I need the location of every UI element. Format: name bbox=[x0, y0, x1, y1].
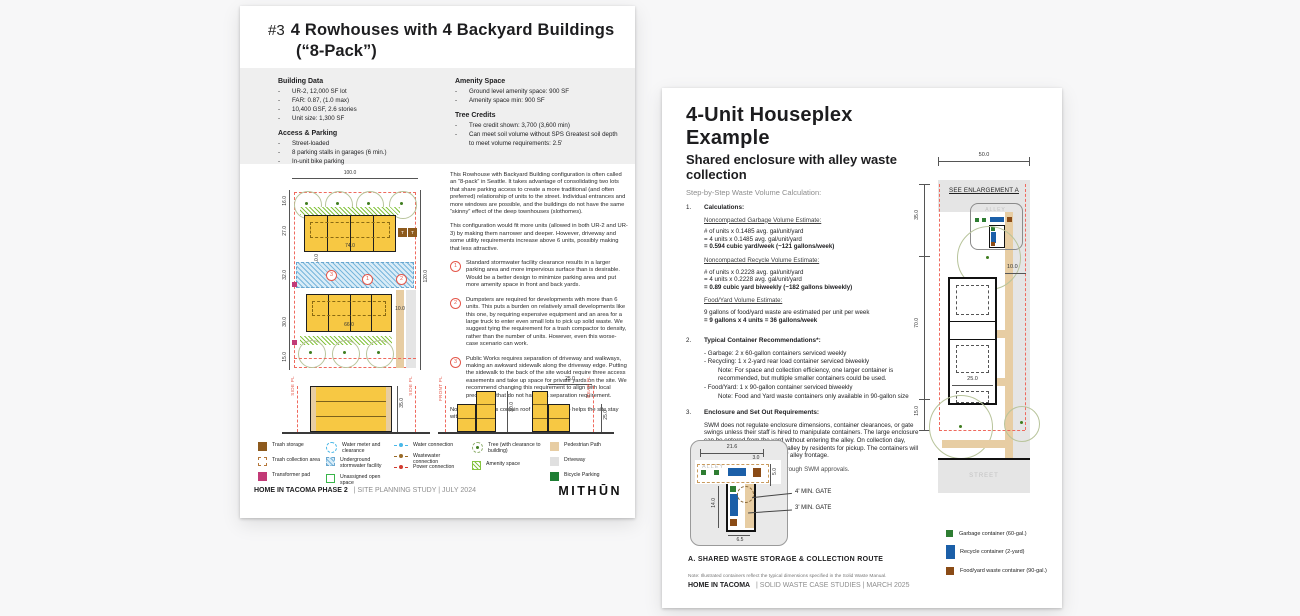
dim-gate-width: 6.5 bbox=[730, 537, 750, 543]
unit-dashed bbox=[956, 345, 989, 373]
recycle-container bbox=[728, 468, 746, 476]
container-legend: Garbage container (60-gal.) Recycle cont… bbox=[946, 530, 1058, 575]
dim-tick bbox=[700, 449, 701, 457]
dim-line bbox=[938, 161, 1030, 162]
tree-dot bbox=[476, 446, 479, 449]
property-line-left bbox=[939, 184, 940, 430]
unit-dashed bbox=[956, 285, 989, 315]
garbage-container bbox=[975, 218, 979, 222]
legend-item: Amenity space bbox=[472, 461, 542, 470]
legend-item: Driveway bbox=[550, 457, 620, 466]
floor-line bbox=[477, 404, 495, 405]
garbage-container bbox=[701, 470, 706, 475]
calc-line: = 4 units x 0.1485 avg. gal/unit/yard bbox=[704, 236, 922, 244]
tree-dot bbox=[377, 351, 380, 354]
legend-label: Power connection bbox=[413, 464, 454, 470]
calc-heading: Noncompacted Recycle Volume Estimate: bbox=[704, 257, 922, 265]
legend-item: Power connection bbox=[394, 464, 464, 470]
calc-line: # of units x 0.2228 avg. gal/unit/yard bbox=[704, 269, 922, 277]
tree-dot bbox=[343, 351, 346, 354]
dim-food-width: 3.0 bbox=[746, 455, 766, 461]
page2-text-column: 4-Unit Houseplex Example Shared enclosur… bbox=[686, 104, 922, 473]
pedestrian-path-icon bbox=[550, 442, 559, 451]
stair-strip bbox=[386, 387, 391, 431]
calc-heading: Food/Yard Volume Estimate: bbox=[704, 297, 922, 305]
dim-lot-depth: 120.0 bbox=[423, 270, 429, 283]
container-bullet: - Recycling: 1 x 2-yard rear load contai… bbox=[704, 358, 922, 366]
trash-storage-icon bbox=[258, 442, 267, 451]
note-text: Standard stormwater facility clearance r… bbox=[466, 260, 628, 290]
front-pl-label: FRONT PL bbox=[438, 376, 443, 401]
info-band: Building Data UR-2, 12,000 SF lot FAR: 0… bbox=[240, 68, 635, 164]
trash-storage-square: T bbox=[398, 228, 407, 237]
bicycle-parking-icon bbox=[550, 472, 559, 481]
tree-dot bbox=[305, 202, 308, 205]
section-heading: Enclosure and Set Out Requirements: bbox=[704, 409, 922, 417]
note-text: Dumpsters are required for developments … bbox=[466, 297, 628, 349]
section-calculations: 1. Calculations: Noncompacted Garbage Vo… bbox=[686, 204, 922, 330]
legend-label: Water connection bbox=[413, 442, 453, 448]
calc-result: = 0.594 cubic yard/week (~121 gallons/we… bbox=[704, 243, 922, 251]
foodyard-container bbox=[730, 519, 737, 526]
amenity-list: Ground level amenity space: 900 SF Ameni… bbox=[455, 87, 623, 105]
site-plan-drawing: 100.0 120.0 16.0 27.0 32.0 30.0 15.0 bbox=[280, 170, 432, 376]
footer-meta: | SITE PLANNING STUDY | JULY 2024 bbox=[354, 487, 476, 494]
note-paragraph: This configuration would fit more units … bbox=[450, 223, 628, 253]
connection-dot bbox=[399, 465, 403, 469]
site-planning-study-page: #34 Rowhouses with 4 Backyard Buildings … bbox=[240, 6, 635, 518]
side-pl-label: SIDE PL bbox=[290, 376, 295, 396]
dim-tick bbox=[919, 256, 930, 257]
list-item: Tree credit shown: 3,700 (3,600 min) bbox=[455, 121, 623, 130]
note-number-badge: 3 bbox=[450, 357, 461, 368]
driveway-icon bbox=[550, 457, 559, 466]
dim-line bbox=[289, 190, 290, 370]
tree-dot bbox=[309, 351, 312, 354]
see-enlargement-label: SEE ENLARGEMENT A bbox=[938, 187, 1030, 194]
dim-path-width: 10.0 bbox=[392, 306, 408, 312]
floor-line bbox=[549, 418, 569, 419]
container-bullet: - Garbage: 2 x 60-gallon containers serv… bbox=[704, 350, 922, 358]
calc-line: = 4 units x 0.2228 avg. gal/unit/yard bbox=[704, 276, 922, 284]
garbage-container bbox=[730, 486, 736, 492]
dim-building-width: 25.0 bbox=[950, 376, 995, 382]
gate-swing-arc bbox=[737, 486, 754, 503]
rowhouse-building: 74.0 bbox=[304, 215, 396, 252]
sheet-number: #3 bbox=[268, 22, 285, 39]
front-walkway bbox=[942, 440, 1012, 448]
legend-item: Underground stormwater facility bbox=[326, 457, 384, 470]
numbered-note: 2 Dumpsters are required for development… bbox=[450, 297, 628, 349]
transformer-pad-square bbox=[292, 340, 297, 345]
dim-left-seg: 27.0 bbox=[282, 226, 288, 236]
page2-title: 4-Unit Houseplex Example bbox=[686, 104, 922, 150]
legend-label: Underground stormwater facility bbox=[340, 457, 384, 470]
plan-body: 74.0 T T 10.0 3 1 2 66.0 10.0 bbox=[292, 190, 418, 370]
garbage-container-icon bbox=[946, 530, 953, 537]
stormwater-icon bbox=[326, 457, 335, 466]
legend-label: Trash storage bbox=[272, 442, 304, 448]
stepped-elevation-high bbox=[532, 391, 548, 432]
note-paragraph: This Rowhouse with Backyard Building con… bbox=[450, 172, 628, 216]
foodyard-container bbox=[753, 468, 761, 477]
dim-line bbox=[601, 404, 602, 432]
list-item: 10,400 GSF, 2.6 stories bbox=[278, 105, 446, 114]
dim-left-seg: 35.0 bbox=[914, 210, 920, 220]
note-number-badge: 2 bbox=[450, 298, 461, 309]
elev-height-dim: 30.0 bbox=[509, 402, 515, 412]
plan-marker-2: 2 bbox=[396, 274, 407, 285]
amenity-hatch bbox=[300, 207, 400, 215]
floor-line bbox=[477, 418, 495, 419]
solid-waste-case-study-page: 4-Unit Houseplex Example Shared enclosur… bbox=[662, 88, 1062, 608]
container-note: Note: Food and Yard waste containers onl… bbox=[718, 393, 922, 401]
footer-project: HOME IN TACOMA PHASE 2 bbox=[254, 487, 348, 494]
legend-label: Recycle container (2-yard) bbox=[960, 549, 1025, 555]
legend-label: Transformer pad bbox=[272, 472, 310, 478]
building-width-label: 74.0 bbox=[305, 243, 395, 249]
garbage-container bbox=[714, 470, 719, 475]
calc-line: 9 gallons of food/yard waste are estimat… bbox=[704, 309, 922, 317]
amenity-space-icon bbox=[472, 461, 481, 470]
numbered-note: 1 Standard stormwater facility clearance… bbox=[450, 260, 628, 290]
street-band: STREET bbox=[938, 460, 1030, 493]
building-divider bbox=[950, 339, 995, 340]
houseplex-site-plan: 50.0 SEE ENLARGEMENT A 35.0 70.0 15.0 AL… bbox=[906, 152, 1058, 502]
floor-line bbox=[458, 418, 475, 419]
path-stub bbox=[997, 330, 1007, 338]
legend-label: Pedestrian Path bbox=[564, 442, 601, 448]
list-item: Unit size: 1,300 SF bbox=[278, 114, 446, 123]
rear-pl-label: REAR PL bbox=[586, 376, 591, 398]
dim-line bbox=[728, 535, 750, 536]
dim-left-seg: 16.0 bbox=[282, 196, 288, 206]
legend-label: Driveway bbox=[564, 457, 585, 463]
water-meter-icon bbox=[326, 442, 337, 453]
legend-label: Garbage container (60-gal.) bbox=[959, 531, 1027, 537]
calc-block: Food/Yard Volume Estimate: 9 gallons of … bbox=[704, 297, 922, 324]
connection-dot bbox=[399, 443, 403, 447]
access-parking-heading: Access & Parking bbox=[278, 130, 446, 137]
page1-header: #34 Rowhouses with 4 Backyard Buildings … bbox=[268, 20, 618, 62]
plan-marker-3: 3 bbox=[326, 270, 337, 281]
tree-dot bbox=[336, 202, 339, 205]
legend-item: Bicycle Parking bbox=[550, 472, 620, 481]
building-width-label: 66.0 bbox=[307, 322, 391, 328]
path-stub bbox=[997, 378, 1007, 386]
amenity-space-heading: Amenity Space bbox=[455, 78, 623, 85]
legend-label: Bicycle Parking bbox=[564, 472, 599, 478]
building-data-heading: Building Data bbox=[278, 78, 446, 85]
pl-dashed-line bbox=[445, 386, 446, 432]
stair-strip bbox=[311, 387, 316, 431]
dim-setout-depth: 5.0 bbox=[772, 468, 778, 475]
elevation-drawings: SIDE PL 35.0 SIDE PL FRONT PL 30.0 25.0 bbox=[280, 374, 620, 438]
section-heading: Calculations: bbox=[704, 204, 922, 212]
note-number-badge: 1 bbox=[450, 261, 461, 272]
building-divider bbox=[950, 321, 995, 322]
dim-line bbox=[397, 386, 398, 432]
setback-line bbox=[294, 358, 416, 359]
tree-credits-list: Tree credit shown: 3,700 (3,600 min) Can… bbox=[455, 121, 623, 148]
dim-left-seg: 32.0 bbox=[282, 270, 288, 280]
container-bullet: - Food/Yard: 1 x 90-gallon container ser… bbox=[704, 384, 922, 392]
roof-deck-dashed bbox=[312, 301, 386, 316]
section-containers: 2. Typical Container Recommendations*: -… bbox=[686, 337, 922, 402]
tree-circle bbox=[332, 340, 360, 368]
access-parking-list: Street-loaded 8 parking stalls in garage… bbox=[278, 139, 446, 166]
list-item: Can meet soil volume without SPS Greates… bbox=[455, 130, 623, 148]
transformer-pad-icon bbox=[258, 472, 267, 481]
pl-dashed-line bbox=[297, 386, 298, 432]
page1-footer: HOME IN TACOMA PHASE 2 | SITE PLANNING S… bbox=[254, 487, 622, 494]
floor-line bbox=[533, 418, 547, 419]
dim-left-seg: 15.0 bbox=[282, 352, 288, 362]
calc-block: Noncompacted Garbage Volume Estimate: # … bbox=[704, 217, 922, 251]
water-connection-icon bbox=[394, 445, 408, 446]
roof-deck-dashed bbox=[310, 222, 390, 238]
dim-left-seg: 70.0 bbox=[914, 318, 920, 328]
pedestrian-path bbox=[396, 290, 404, 368]
tree-dot bbox=[959, 425, 962, 428]
legend-item: Pedestrian Path bbox=[550, 442, 620, 451]
stepped-elevation-low bbox=[548, 404, 570, 432]
legend-item: Water connection bbox=[394, 442, 464, 448]
tree-clearance-circle bbox=[1004, 406, 1040, 442]
footer-project: HOME IN TACOMA bbox=[688, 582, 750, 589]
section-number: 2. bbox=[686, 337, 704, 402]
dim-left-seg: 15.0 bbox=[914, 406, 920, 416]
dim-line bbox=[718, 486, 719, 528]
desktop-canvas: { "page1": { "header": {"num": "#3", "ti… bbox=[0, 0, 1300, 616]
inset-caption: A. SHARED WASTE STORAGE & COLLECTION ROU… bbox=[688, 556, 883, 563]
dim-line bbox=[420, 190, 421, 370]
transformer-pad-square bbox=[292, 282, 297, 287]
page1-title-line2: (“8-Pack”) bbox=[296, 41, 618, 62]
side-elevation-building bbox=[310, 386, 392, 432]
page2-intro: Step-by-Step Waste Volume Calculation: bbox=[686, 188, 922, 197]
trash-collection-icon bbox=[258, 457, 267, 466]
driveway-strip bbox=[406, 290, 416, 368]
page1-title: 4 Rowhouses with 4 Backyard Buildings bbox=[291, 21, 615, 39]
dim-line bbox=[952, 385, 993, 386]
ground-line bbox=[282, 432, 430, 434]
enclosure-plan bbox=[726, 484, 756, 532]
dim-tick bbox=[1029, 157, 1030, 166]
floor-line bbox=[311, 401, 391, 402]
list-item: Amenity space min: 900 SF bbox=[455, 96, 623, 105]
legend-item: Transformer pad bbox=[258, 472, 320, 481]
tree-dot bbox=[400, 202, 403, 205]
dim-tick bbox=[919, 399, 930, 400]
trash-storage-square: T bbox=[408, 228, 417, 237]
calc-result: = 0.89 cubic yard biweekly (~182 gallons… bbox=[704, 284, 922, 292]
property-line-right bbox=[1025, 184, 1026, 430]
floor-line bbox=[311, 416, 391, 417]
legend-label: Amenity space bbox=[486, 461, 520, 467]
tree-circle bbox=[366, 340, 394, 368]
container-note: Note: For space and collection efficienc… bbox=[718, 367, 922, 382]
dim-line bbox=[1005, 273, 1026, 274]
pl-dashed-line bbox=[593, 386, 594, 432]
info-col-left: Building Data UR-2, 12,000 SF lot FAR: 0… bbox=[278, 78, 446, 173]
tree-icon bbox=[472, 442, 483, 453]
list-item: Ground level amenity space: 900 SF bbox=[455, 87, 623, 96]
dim-lot-width: 50.0 bbox=[938, 152, 1030, 158]
legend-label: Tree (with clearance to building) bbox=[488, 442, 542, 455]
elev-height-dim: 25.0 bbox=[603, 410, 609, 420]
calc-line: # of units x 0.1485 avg. gal/unit/yard bbox=[704, 228, 922, 236]
tree-dot bbox=[1020, 421, 1023, 424]
gate3-label: 3' MIN. GATE bbox=[795, 505, 831, 511]
open-space-icon bbox=[326, 474, 335, 483]
garbage-container bbox=[982, 218, 986, 222]
legend-item: Garbage container (60-gal.) bbox=[946, 530, 1058, 537]
legend-item: Trash collection area bbox=[258, 457, 320, 466]
mithun-logo: MITHŪN bbox=[558, 484, 622, 498]
dim-lot-width: 100.0 bbox=[280, 170, 420, 176]
side-pl-label: SIDE PL bbox=[408, 376, 413, 396]
tree-dot bbox=[986, 256, 989, 259]
legend-item: Tree (with clearance to building) bbox=[472, 442, 542, 455]
tree-credits-heading: Tree Credits bbox=[455, 112, 623, 119]
tree-circle bbox=[298, 340, 326, 368]
list-item: UR-2, 12,000 SF lot bbox=[278, 87, 446, 96]
calc-block: Noncompacted Recycle Volume Estimate: # … bbox=[704, 257, 922, 291]
dim-path: 10.0 bbox=[1007, 264, 1027, 270]
legend-item: Unassigned open space bbox=[326, 474, 384, 487]
legend-label: Unassigned open space bbox=[340, 474, 384, 487]
dim-line bbox=[770, 464, 771, 486]
page2-footer: HOME IN TACOMA | SOLID WASTE CASE STUDIE… bbox=[688, 582, 1048, 589]
connection-dot bbox=[399, 454, 403, 458]
building-data-list: UR-2, 12,000 SF lot FAR: 0.87, (1.0 max)… bbox=[278, 87, 446, 123]
list-item: FAR: 0.87, (1.0 max) bbox=[278, 96, 446, 105]
power-connection-icon bbox=[394, 467, 408, 468]
list-item: 8 parking stalls in garages (6 min.) bbox=[278, 148, 446, 157]
manual-note: Note: Illustrated containers reflect the… bbox=[688, 574, 988, 579]
dim-line bbox=[292, 178, 418, 179]
dim-enclosure-depth: 14.0 bbox=[711, 498, 717, 508]
section-number: 1. bbox=[686, 204, 704, 330]
gate4-label: 4' MIN. GATE bbox=[795, 489, 831, 495]
street-label: STREET bbox=[938, 473, 1030, 479]
enlargement-inset: 21.6 ALLEY 3.0 5.0 14.0 6.5 4' MIN. GATE… bbox=[688, 438, 868, 550]
recycle-container bbox=[990, 217, 1004, 222]
floor-line bbox=[533, 404, 547, 405]
section-heading: Typical Container Recommendations*: bbox=[704, 337, 922, 345]
stepped-elevation-low bbox=[457, 404, 476, 432]
plan-marker-1: 1 bbox=[362, 274, 373, 285]
legend-item: Recycle container (2-yard) bbox=[946, 545, 1058, 559]
recycle-container-icon bbox=[946, 545, 955, 559]
legend-label: Water meter and clearance bbox=[342, 442, 384, 455]
dim-left-seg: 30.0 bbox=[282, 317, 288, 327]
list-item: Street-loaded bbox=[278, 139, 446, 148]
dim-tick bbox=[919, 184, 930, 185]
stepped-elevation-high bbox=[476, 391, 496, 432]
calc-result: = 9 gallons x 4 units = 36 gallons/week bbox=[704, 317, 922, 325]
info-col-right: Amenity Space Ground level amenity space… bbox=[455, 78, 623, 155]
footer-meta: | SOLID WASTE CASE STUDIES | MARCH 2025 bbox=[756, 582, 910, 589]
ground-line bbox=[438, 432, 614, 434]
tree-dot bbox=[367, 202, 370, 205]
page2-subtitle: Shared enclosure with alley waste collec… bbox=[686, 152, 922, 182]
elev-height-dim: 35.0 bbox=[399, 398, 405, 408]
dim-tick bbox=[938, 157, 939, 166]
calc-heading: Noncompacted Garbage Volume Estimate: bbox=[704, 217, 922, 225]
dim-line bbox=[924, 184, 925, 430]
pl-dashed-line bbox=[415, 386, 416, 432]
alley-label: ALLEY bbox=[970, 207, 1021, 213]
legend-item: Trash storage bbox=[258, 442, 320, 451]
houseplex-building: 25.0 bbox=[948, 277, 997, 405]
wastewater-connection-icon bbox=[394, 456, 408, 457]
list-item: In-unit bike parking bbox=[278, 157, 446, 166]
legend-label: Trash collection area bbox=[272, 457, 320, 463]
backyard-building: 66.0 bbox=[306, 294, 392, 332]
legend-item: Water meter and clearance bbox=[326, 442, 384, 455]
dim-frontage: 21.6 bbox=[702, 444, 762, 450]
dim-line bbox=[700, 453, 764, 454]
dim-line bbox=[507, 391, 508, 432]
foodyard-container bbox=[1007, 217, 1012, 222]
